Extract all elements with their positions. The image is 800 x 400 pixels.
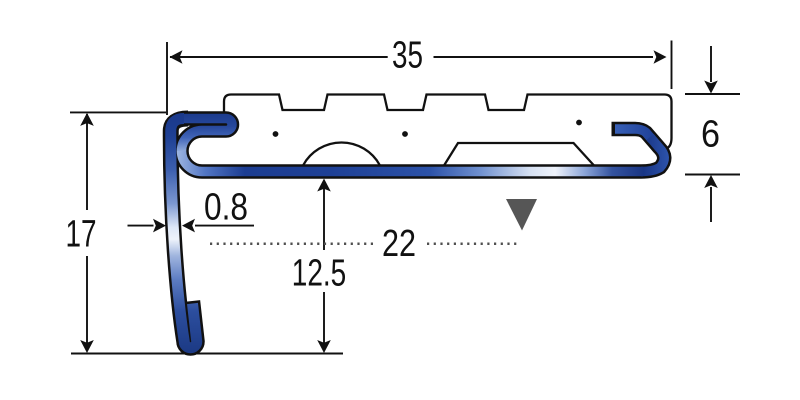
svg-text:12.5: 12.5 [292, 253, 347, 295]
svg-text:35: 35 [392, 35, 423, 77]
svg-text:17: 17 [66, 213, 97, 255]
svg-text:6: 6 [701, 114, 720, 156]
svg-text:22: 22 [382, 223, 416, 265]
svg-text:0.8: 0.8 [204, 186, 248, 228]
